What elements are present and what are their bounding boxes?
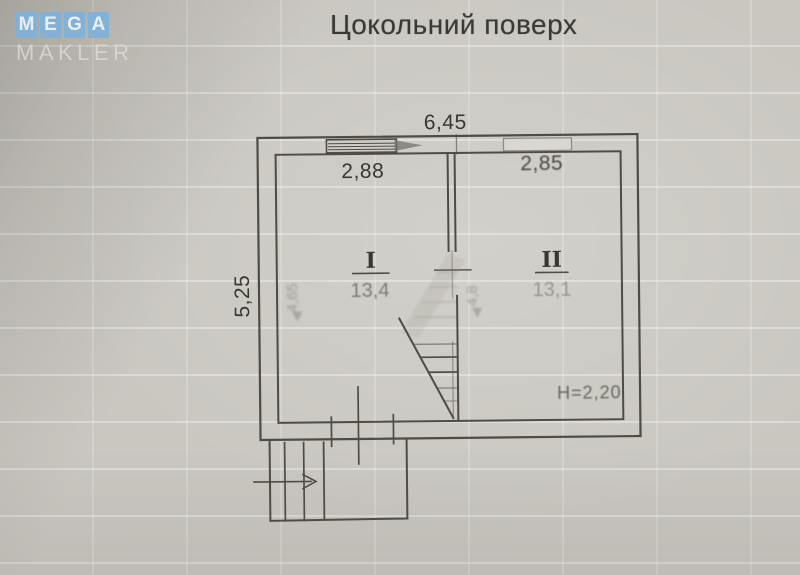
window-hatch-line	[328, 146, 394, 147]
arrow-tail	[254, 481, 311, 482]
stair-edge-faint	[453, 342, 454, 418]
faded-arrow-icon	[292, 312, 302, 322]
floor-plan: 6,45 2,88 2,85 5,25 H=2,20 4,65 4,8 I 13…	[0, 0, 800, 575]
faded-dimension-left: 4,65	[284, 283, 301, 312]
window-hatch-line	[329, 149, 395, 150]
door-opening	[331, 387, 394, 465]
window-wedge	[394, 140, 422, 151]
ceiling-height-note: H=2,20	[557, 382, 622, 403]
room1-numeral: I	[365, 248, 376, 274]
wall-line	[455, 154, 456, 251]
dimension-room2-width: 2,85	[520, 152, 563, 175]
room1-area: 13,4	[350, 280, 389, 302]
window-left-icon	[326, 139, 422, 153]
wall-line	[448, 154, 449, 251]
door-center-line	[358, 387, 359, 464]
dimension-room1-width: 2,88	[341, 160, 384, 183]
window-hatch-line	[328, 143, 394, 144]
room2-area: 13,1	[532, 279, 571, 301]
window-frame	[503, 138, 571, 151]
room2-numeral: II	[541, 247, 562, 273]
dimension-overall-height: 5,25	[231, 275, 254, 318]
faded-arrow-icon	[472, 308, 482, 318]
stair-stringer	[399, 318, 453, 419]
entrance-steps	[270, 440, 408, 520]
step-line	[324, 442, 325, 519]
faded-dimension-middle: 4,8	[464, 285, 481, 306]
dimension-overall-width: 6,45	[424, 111, 467, 134]
porch-outline	[270, 440, 408, 520]
window-right-icon	[503, 138, 571, 151]
